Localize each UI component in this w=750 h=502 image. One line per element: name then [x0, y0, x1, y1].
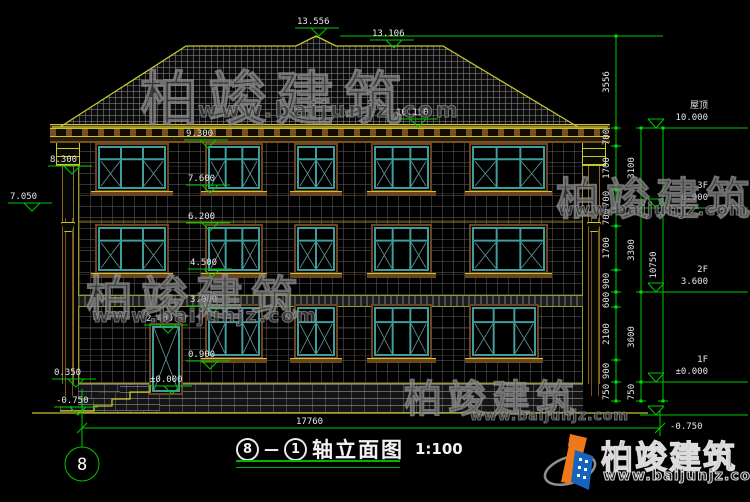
elevation-label: 13.556 — [297, 17, 330, 27]
title-underline — [236, 460, 400, 468]
window — [469, 224, 548, 274]
floor-name: 1F — [668, 355, 708, 365]
dim-value: 10750 — [649, 251, 659, 278]
window — [371, 304, 432, 359]
window-sill — [290, 358, 342, 363]
dim-value: 3300 — [627, 239, 637, 261]
dim-value: 750 — [627, 383, 637, 399]
dim-tick-dot — [615, 35, 618, 38]
window-glazing — [373, 306, 430, 357]
window-glazing — [471, 226, 546, 272]
dim-tick-dot — [615, 127, 618, 130]
floor-elevation: ±0.000 — [664, 367, 708, 377]
window-sill — [367, 358, 436, 363]
watermark-url: www.baijunjz.com — [558, 200, 748, 220]
floor-level-triangle — [648, 283, 664, 292]
floor-name: 2F — [668, 265, 708, 275]
dim-tick-dot — [615, 269, 618, 272]
window-glazing — [296, 145, 336, 190]
dim-value: 900 — [602, 273, 612, 289]
window-sill — [465, 273, 552, 278]
window — [371, 224, 432, 274]
axis-start-bubble: 8 — [236, 438, 259, 461]
window — [469, 304, 539, 359]
right-downpipe — [591, 218, 599, 396]
watermark-brand: 柏竣建筑 — [140, 52, 412, 136]
dim-value: 900 — [602, 363, 612, 379]
floor-level-triangle — [648, 119, 664, 128]
dim-value: 750 — [602, 383, 612, 399]
window — [371, 143, 432, 192]
floor-name: 屋顶 — [668, 101, 708, 111]
axis-bubble-number: 8 — [77, 455, 87, 475]
dim-tick-dot — [640, 127, 643, 130]
window — [469, 143, 548, 192]
elevation-label: 0.900 — [188, 350, 215, 360]
title-scale: 1:100 — [415, 440, 463, 458]
dim-value: 700 — [602, 129, 612, 145]
window — [95, 143, 169, 192]
elevation-marker-symbol — [295, 28, 339, 36]
dim-value: 3600 — [627, 326, 637, 348]
axis-end-bubble: 1 — [284, 438, 307, 461]
dim-tick-dot — [640, 381, 643, 384]
window-sill — [91, 191, 173, 196]
dim-value: 2100 — [602, 323, 612, 345]
window-glazing — [373, 226, 430, 272]
elevation-label: 8.300 — [50, 155, 77, 165]
overall-width-dim: 17760 — [296, 417, 323, 427]
window-sill — [465, 358, 543, 363]
title-dash: — — [264, 440, 279, 458]
cornice-bottom-band — [50, 136, 610, 143]
left-column — [56, 140, 80, 396]
floor-level-triangle — [648, 406, 664, 415]
dim-tick-dot — [615, 291, 618, 294]
floor-level-triangle — [648, 373, 664, 382]
dim-tick-dot — [615, 359, 618, 362]
logo-building-icon — [543, 428, 601, 496]
window-sill — [201, 191, 267, 196]
dim-tick-dot — [662, 400, 665, 403]
floor-elevation: 10.000 — [664, 113, 708, 123]
window-glazing — [373, 145, 430, 190]
dim-tick-dot — [640, 291, 643, 294]
window-sill — [367, 273, 436, 278]
site-logo: 柏竣建筑 www.baijunjz.com — [543, 426, 750, 500]
elevation-label: 6.200 — [188, 212, 215, 222]
elevation-label: -0.750 — [56, 396, 89, 406]
dim-value: 3556 — [602, 71, 612, 93]
cad-elevation-drawing: 柏竣建筑 www.baijunjz.com 柏竣建筑 www.baijunjz.… — [0, 0, 750, 502]
watermark-url: www.baijunjz.com — [198, 98, 461, 122]
dim-tick-dot — [640, 400, 643, 403]
window — [294, 143, 338, 192]
elevation-marker-symbol — [8, 203, 52, 211]
dim-tick-dot — [615, 306, 618, 309]
dim-tick-dot — [615, 145, 618, 148]
window — [205, 143, 263, 192]
window-sill — [367, 191, 436, 196]
dim-value: 1700 — [602, 237, 612, 259]
watermark-url: www.baijunjz.com — [92, 305, 318, 327]
dim-tick-dot — [615, 400, 618, 403]
window-glazing — [207, 145, 261, 190]
logo-url-text: www.baijunjz.com — [603, 468, 750, 484]
elevation-label: 0.350 — [54, 368, 81, 378]
window-sill — [465, 191, 552, 196]
window-glazing — [471, 145, 546, 190]
floor-elevation: 3.600 — [664, 277, 708, 287]
dim-value: 600 — [602, 291, 612, 307]
elevation-label: 13.106 — [372, 29, 405, 39]
dim-tick-dot — [615, 381, 618, 384]
elevation-label: ±0.000 — [150, 375, 183, 385]
dim-tick-dot — [662, 127, 665, 130]
elevation-label: 7.600 — [188, 174, 215, 184]
window-sill — [290, 191, 342, 196]
window-glazing — [97, 145, 167, 190]
elevation-label: 7.050 — [10, 192, 37, 202]
watermark-url: www.baijunjz.com — [470, 408, 629, 424]
window-glazing — [471, 306, 537, 357]
